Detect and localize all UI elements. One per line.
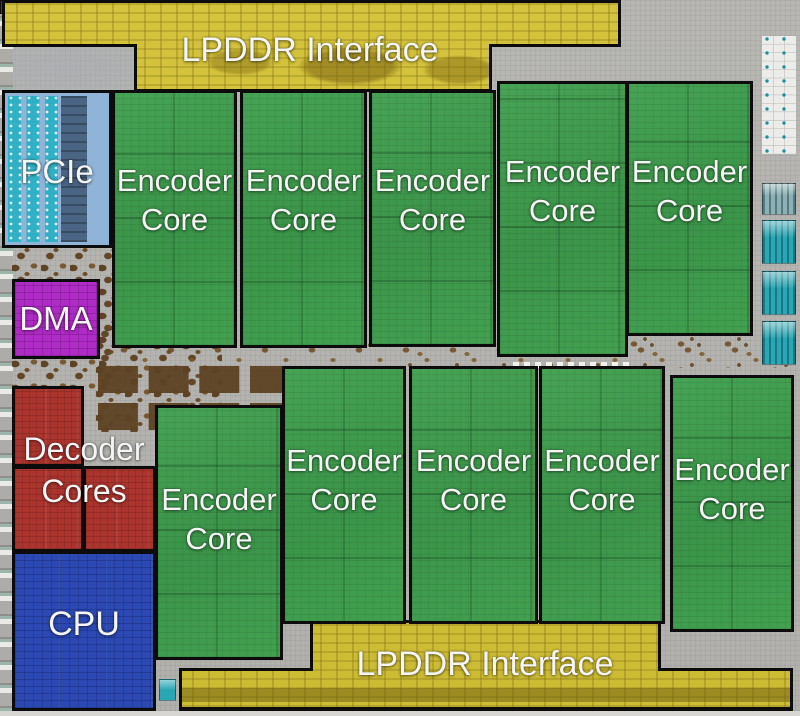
encoder-label-line1: Encoder [673,450,791,489]
cpu-label: CPU [48,605,120,644]
encoder-label-line2: Core [629,191,750,230]
right-edge-macro [762,271,796,315]
encoder-label-line1: Encoder [500,152,625,191]
decoder-cores-label: Decoder Cores [8,428,160,512]
right-edge-macro [762,321,796,365]
encoder-core-block: EncoderCore [409,366,538,624]
encoder-label-line1: Encoder [372,161,493,200]
encoder-label-line1: Encoder [158,480,280,519]
encoder-core-block: EncoderCore [369,90,496,347]
encoder-label-line1: Encoder [243,161,364,200]
pcie-label: PCIe [20,153,93,191]
encoder-label-line1: Encoder [412,441,535,480]
encoder-label-line2: Core [412,480,535,519]
dma-block: DMA [12,279,100,359]
die-bottom-edge [0,711,800,716]
encoder-label-line2: Core [500,191,625,230]
encoder-label-line1: Encoder [542,441,662,480]
encoder-label-line1: Encoder [115,161,234,200]
encoder-label-line1: Encoder [285,441,403,480]
right-edge-macro [762,183,796,215]
encoder-core-block: EncoderCore [670,375,794,632]
encoder-label-line2: Core [158,519,280,558]
encoder-core-block: EncoderCore [539,366,665,624]
encoder-core-block: EncoderCore [155,405,283,660]
right-edge-pad-array [762,36,796,154]
encoder-label-line1: Encoder [629,152,750,191]
encoder-core-block: EncoderCore [497,81,628,357]
encoder-label-line2: Core [542,480,662,519]
encoder-core-block: EncoderCore [626,81,753,336]
lpddr-top-label: LPDDR Interface [155,31,465,69]
decoder-label-line1: Decoder [8,428,160,470]
pcie-block: PCIe [2,90,112,248]
encoder-label-line2: Core [243,200,364,239]
lpddr-bottom-label: LPDDR Interface [335,645,635,683]
encoder-core-block: EncoderCore [282,366,406,624]
small-macro [159,679,176,701]
encoder-label-line2: Core [285,480,403,519]
right-edge-macro [762,220,796,264]
encoder-core-block: EncoderCore [240,90,367,348]
encoder-label-line2: Core [372,200,493,239]
encoder-core-block: EncoderCore [112,90,237,348]
chip-die-photo: PCIe DMA CPU EncoderCore EncoderCore Enc… [0,0,800,716]
encoder-label-line2: Core [115,200,234,239]
encoder-label-line2: Core [673,489,791,528]
cpu-block: CPU [12,551,156,711]
decoder-label-line2: Cores [8,470,160,512]
dma-label: DMA [19,300,92,338]
